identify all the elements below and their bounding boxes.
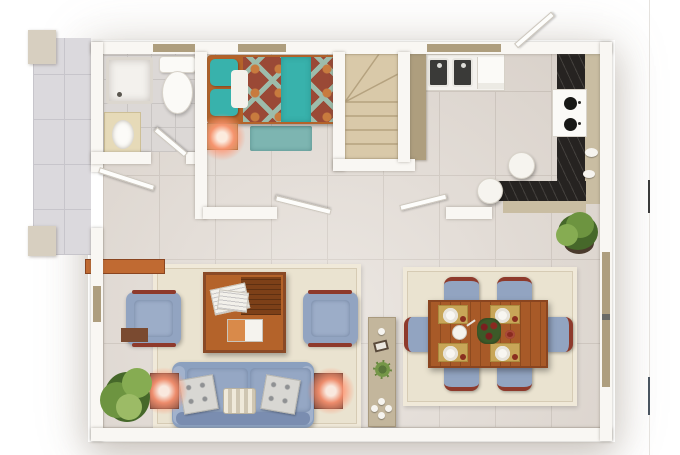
- console-decor-dot: [378, 328, 385, 335]
- window-kitchen: [427, 44, 501, 52]
- magazine: [217, 289, 249, 313]
- terrace-pillar-top: [28, 30, 56, 64]
- place-setting: [438, 305, 468, 324]
- window-bedroom: [238, 44, 286, 52]
- kitchen-side-counter: [477, 57, 504, 89]
- wall-bath-bedroom-divider: [195, 52, 207, 219]
- burner-icon: [564, 97, 577, 110]
- place-setting: [438, 343, 468, 362]
- fruit: [512, 316, 518, 322]
- wall-stair-left: [333, 52, 345, 171]
- sofa-pillow-right: [260, 374, 301, 415]
- dining-corner-plant: [554, 212, 604, 260]
- terrace-floor: [33, 38, 91, 255]
- serving-pan: [452, 325, 467, 340]
- bed-pillow-white: [231, 70, 248, 108]
- fruit: [460, 354, 466, 360]
- faucet-icon: [437, 63, 442, 68]
- kitchen-stool-1: [508, 152, 535, 179]
- sink-basin: [112, 120, 134, 149]
- divider-console: [368, 317, 396, 427]
- place-setting: [490, 343, 520, 362]
- shower-tray: [106, 57, 153, 104]
- armrest-wood: [132, 290, 176, 294]
- small-bowl: [505, 330, 515, 339]
- window-mullion: [602, 314, 610, 320]
- wall-stair-right: [398, 52, 410, 162]
- plant-foliage: [556, 224, 578, 246]
- flower-centerpiece: [477, 318, 501, 344]
- burner-icon: [564, 118, 577, 131]
- plate: [495, 346, 510, 361]
- console-candle: [371, 405, 378, 412]
- console-candle: [378, 398, 385, 405]
- console-plant-icon: [373, 360, 392, 379]
- plant-foliage: [116, 394, 142, 420]
- toilet-bowl: [162, 71, 193, 114]
- gas-stove: [552, 89, 587, 137]
- edge-mark-1: [648, 180, 650, 213]
- counter-dish-2: [583, 170, 595, 178]
- sink-vanity: [104, 112, 141, 156]
- burner-dot: [578, 101, 581, 104]
- fruit: [460, 316, 466, 322]
- armchair-cushion: [311, 300, 350, 337]
- living-room-plant: [98, 364, 156, 430]
- wall-kitchen-bottom: [446, 207, 492, 219]
- kitchen-stool-2: [477, 178, 503, 204]
- wall-bathroom-bottom: [91, 152, 151, 164]
- fruit: [512, 354, 518, 360]
- sofa-center-cushion: [223, 388, 256, 414]
- lamp-glow-right: [307, 367, 355, 415]
- edge-mark-2: [648, 377, 650, 415]
- armrest-wood: [308, 343, 352, 347]
- armrest-wood: [308, 290, 352, 294]
- faucet-icon: [461, 63, 466, 68]
- counter-dish-1: [585, 148, 598, 157]
- dining-chair-right: [546, 317, 573, 352]
- bedroom-teal-rug: [250, 126, 312, 151]
- burner-dot: [578, 122, 581, 125]
- wall-bottom: [91, 428, 612, 441]
- open-magazine: [227, 319, 263, 342]
- window-living-left: [93, 286, 101, 322]
- shower-drain-icon: [117, 92, 122, 97]
- console-photo-frame: [373, 339, 389, 352]
- floor-plan: [0, 0, 680, 455]
- staircase: [345, 54, 398, 159]
- side-shelf: [121, 328, 148, 342]
- terrace-pillar-bottom: [28, 226, 56, 256]
- marble-counter-bottom: [498, 181, 586, 201]
- kitchen-partition: [410, 54, 426, 160]
- console-candle: [378, 412, 385, 419]
- kitchen-sink-unit: [424, 54, 505, 91]
- armchair-right: [303, 292, 358, 345]
- sink-bowl-left: [428, 58, 449, 87]
- dining-chair-left: [404, 317, 431, 352]
- wall-bedroom-bottom: [203, 207, 277, 219]
- armrest-wood: [132, 343, 176, 347]
- plate: [443, 308, 458, 323]
- plate: [443, 346, 458, 361]
- bed-teal-runner: [281, 57, 311, 122]
- window-bathroom: [153, 44, 195, 52]
- console-candle: [385, 405, 392, 412]
- sink-bowl-right: [452, 58, 473, 87]
